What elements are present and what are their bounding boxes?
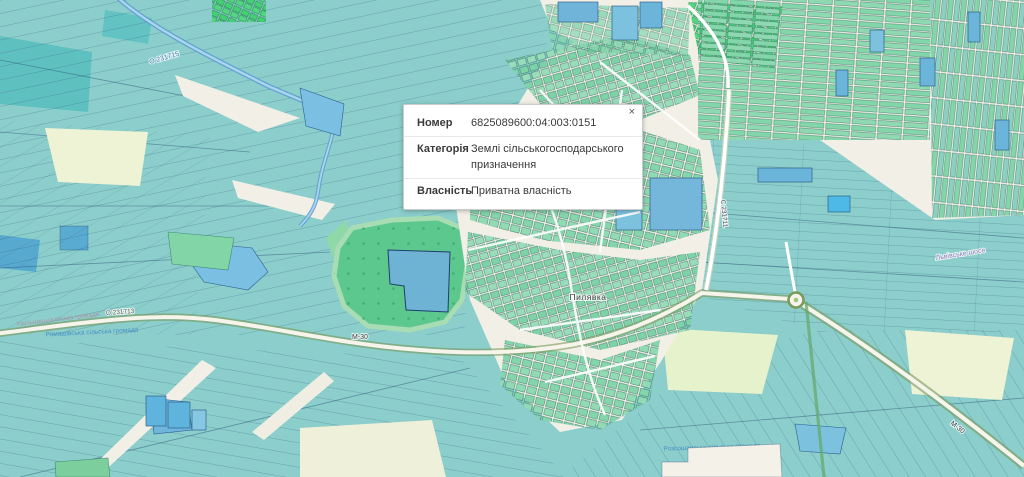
popup-label-number: Номер <box>417 116 471 131</box>
popup-value-number: 6825089600:04:003:0151 <box>471 116 642 131</box>
cadastral-map-app: О 231715 О 231713 М-30 М-30 С 231711 Льв… <box>0 0 1024 477</box>
popup-label-category: Категорія <box>417 142 471 173</box>
close-icon[interactable]: × <box>629 107 635 118</box>
popup-row-ownership: Власність Приватна власність <box>404 178 642 204</box>
popup-value-category: Землі сільськогосподарського призначення <box>471 142 642 173</box>
label-village: Пилявка <box>569 292 606 302</box>
popup-row-category: Категорія Землі сільськогосподарського п… <box>404 136 642 178</box>
label-m30-center: М-30 <box>352 334 368 341</box>
map-canvas[interactable]: О 231715 О 231713 М-30 М-30 С 231711 Льв… <box>0 0 1024 477</box>
popup-row-number: Номер 6825089600:04:003:0151 <box>404 111 642 136</box>
popup-label-ownership: Власність <box>417 184 471 199</box>
popup-value-ownership: Приватна власність <box>471 184 642 199</box>
parcel-info-popup: × Номер 6825089600:04:003:0151 Категорія… <box>403 104 643 210</box>
